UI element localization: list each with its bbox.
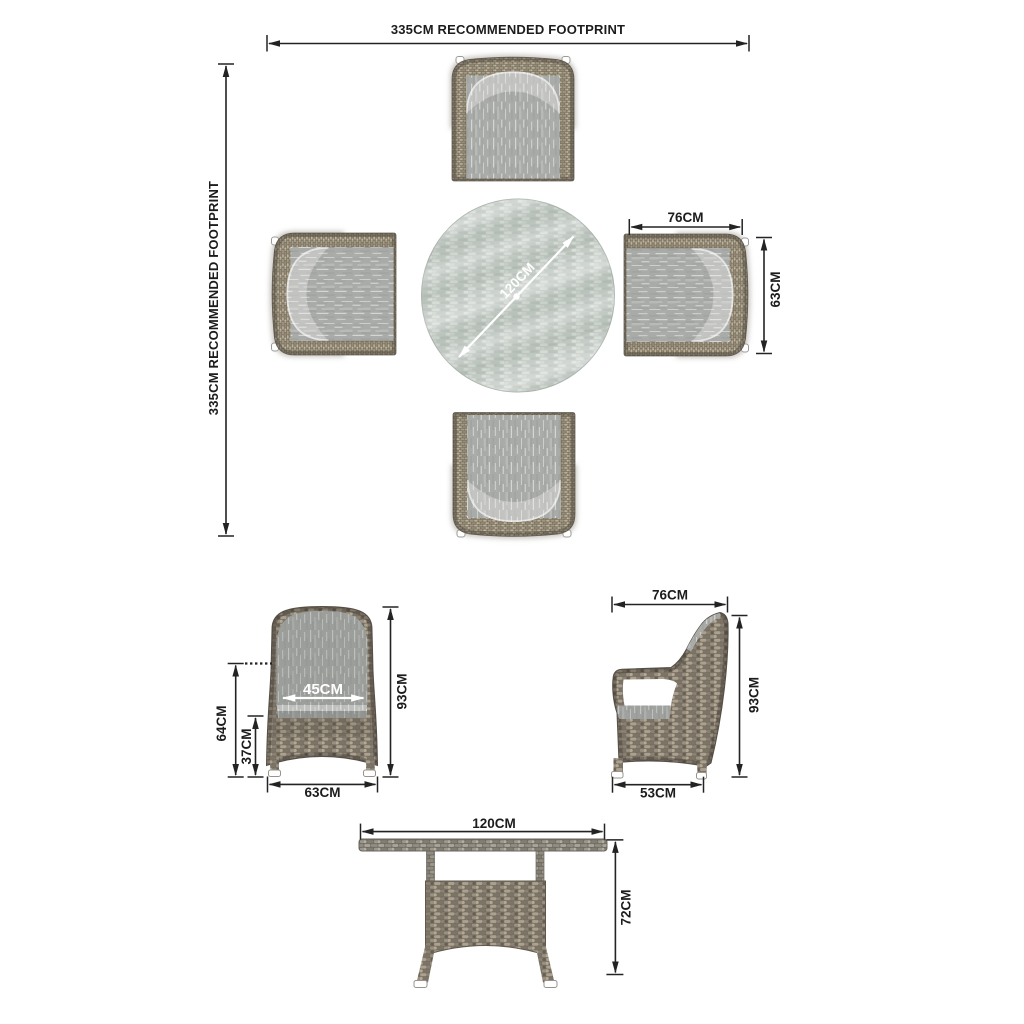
svg-text:76CM: 76CM	[652, 588, 688, 603]
svg-text:63CM: 63CM	[768, 271, 783, 307]
svg-text:76CM: 76CM	[667, 210, 703, 225]
svg-text:335CM RECOMMENDED FOOTPRINT: 335CM RECOMMENDED FOOTPRINT	[391, 22, 625, 37]
svg-text:93CM: 93CM	[747, 677, 762, 713]
svg-text:93CM: 93CM	[395, 673, 410, 709]
svg-text:120CM: 120CM	[472, 816, 516, 831]
svg-text:37CM: 37CM	[239, 728, 254, 764]
svg-text:72CM: 72CM	[619, 889, 634, 925]
svg-text:63CM: 63CM	[304, 785, 340, 800]
svg-text:45CM: 45CM	[303, 681, 343, 698]
svg-text:53CM: 53CM	[640, 786, 676, 801]
svg-text:335CM RECOMMENDED FOOTPRINT: 335CM RECOMMENDED FOOTPRINT	[206, 181, 221, 415]
svg-text:64CM: 64CM	[214, 705, 229, 741]
